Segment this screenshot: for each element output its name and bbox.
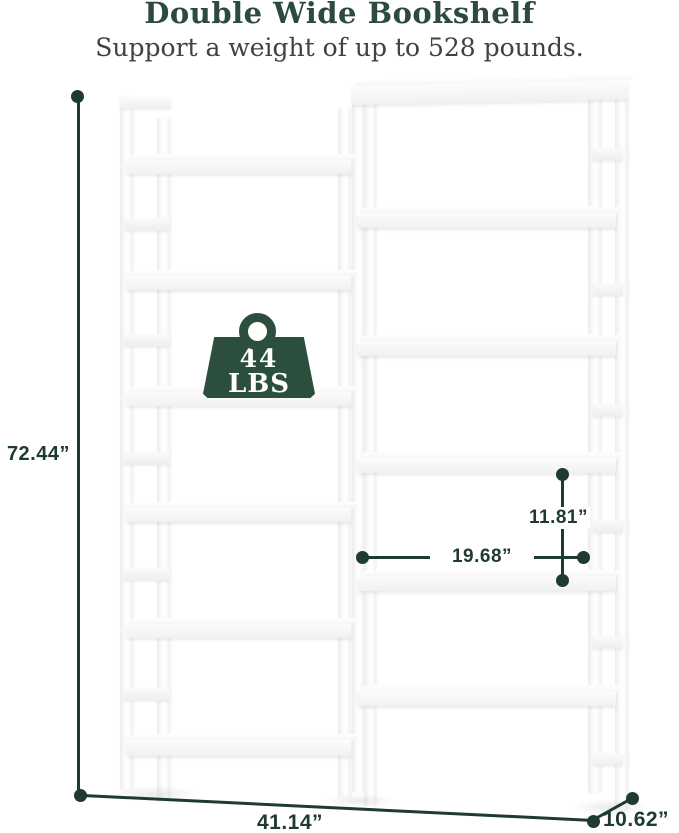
total-height-label: 72.44”	[0, 443, 70, 466]
shelf-board	[127, 160, 351, 174]
shelf-board	[358, 576, 616, 591]
side-rung	[124, 688, 170, 701]
dimension-endpoint-dot	[587, 815, 600, 828]
dimension-endpoint-dot	[556, 574, 569, 587]
top-shelf-board	[352, 80, 628, 105]
height-dimension-line	[77, 97, 80, 797]
dimension-endpoint-dot	[556, 468, 569, 481]
side-rung	[124, 568, 170, 581]
page-title: Double Wide Bookshelf	[0, 0, 679, 30]
side-rung	[124, 218, 170, 231]
shelf-board	[358, 691, 616, 706]
depth-label: 10.62”	[603, 808, 679, 832]
side-rung	[124, 452, 170, 465]
side-rung	[593, 520, 623, 533]
shelf-post	[120, 97, 133, 790]
shelf-board	[358, 341, 616, 356]
shelf-board	[127, 624, 351, 638]
dimension-endpoint-dot	[71, 90, 84, 103]
side-rung	[593, 404, 623, 417]
shelf-board	[358, 213, 616, 228]
dimension-endpoint-dot	[577, 551, 590, 564]
weight-unit: LBS	[203, 371, 315, 397]
dimension-endpoint-dot	[356, 551, 369, 564]
shelf-spacing-label: 11.81”	[527, 507, 590, 529]
page-subtitle: Support a weight of up to 528 pounds.	[0, 33, 679, 62]
side-rung	[593, 148, 623, 161]
side-rung	[593, 753, 623, 766]
side-rung	[593, 283, 623, 296]
product-image: Double Wide Bookshelf Support a weight o…	[0, 0, 679, 833]
weight-capacity-badge: 44 LBS	[203, 310, 315, 398]
side-rung	[593, 636, 623, 649]
side-rail	[120, 97, 171, 109]
weight-handle-icon	[239, 313, 276, 350]
total-width-label: 41.14”	[235, 811, 345, 833]
shelf-board	[358, 458, 616, 473]
side-rung	[124, 334, 170, 347]
shelf-board	[127, 276, 351, 290]
dimension-endpoint-dot	[626, 792, 639, 805]
shelf-post	[338, 108, 351, 797]
dimension-endpoint-dot	[74, 789, 87, 802]
shelf-board	[127, 740, 351, 756]
shelf-width-label: 19.68”	[430, 546, 534, 568]
shelf-board	[127, 508, 351, 522]
